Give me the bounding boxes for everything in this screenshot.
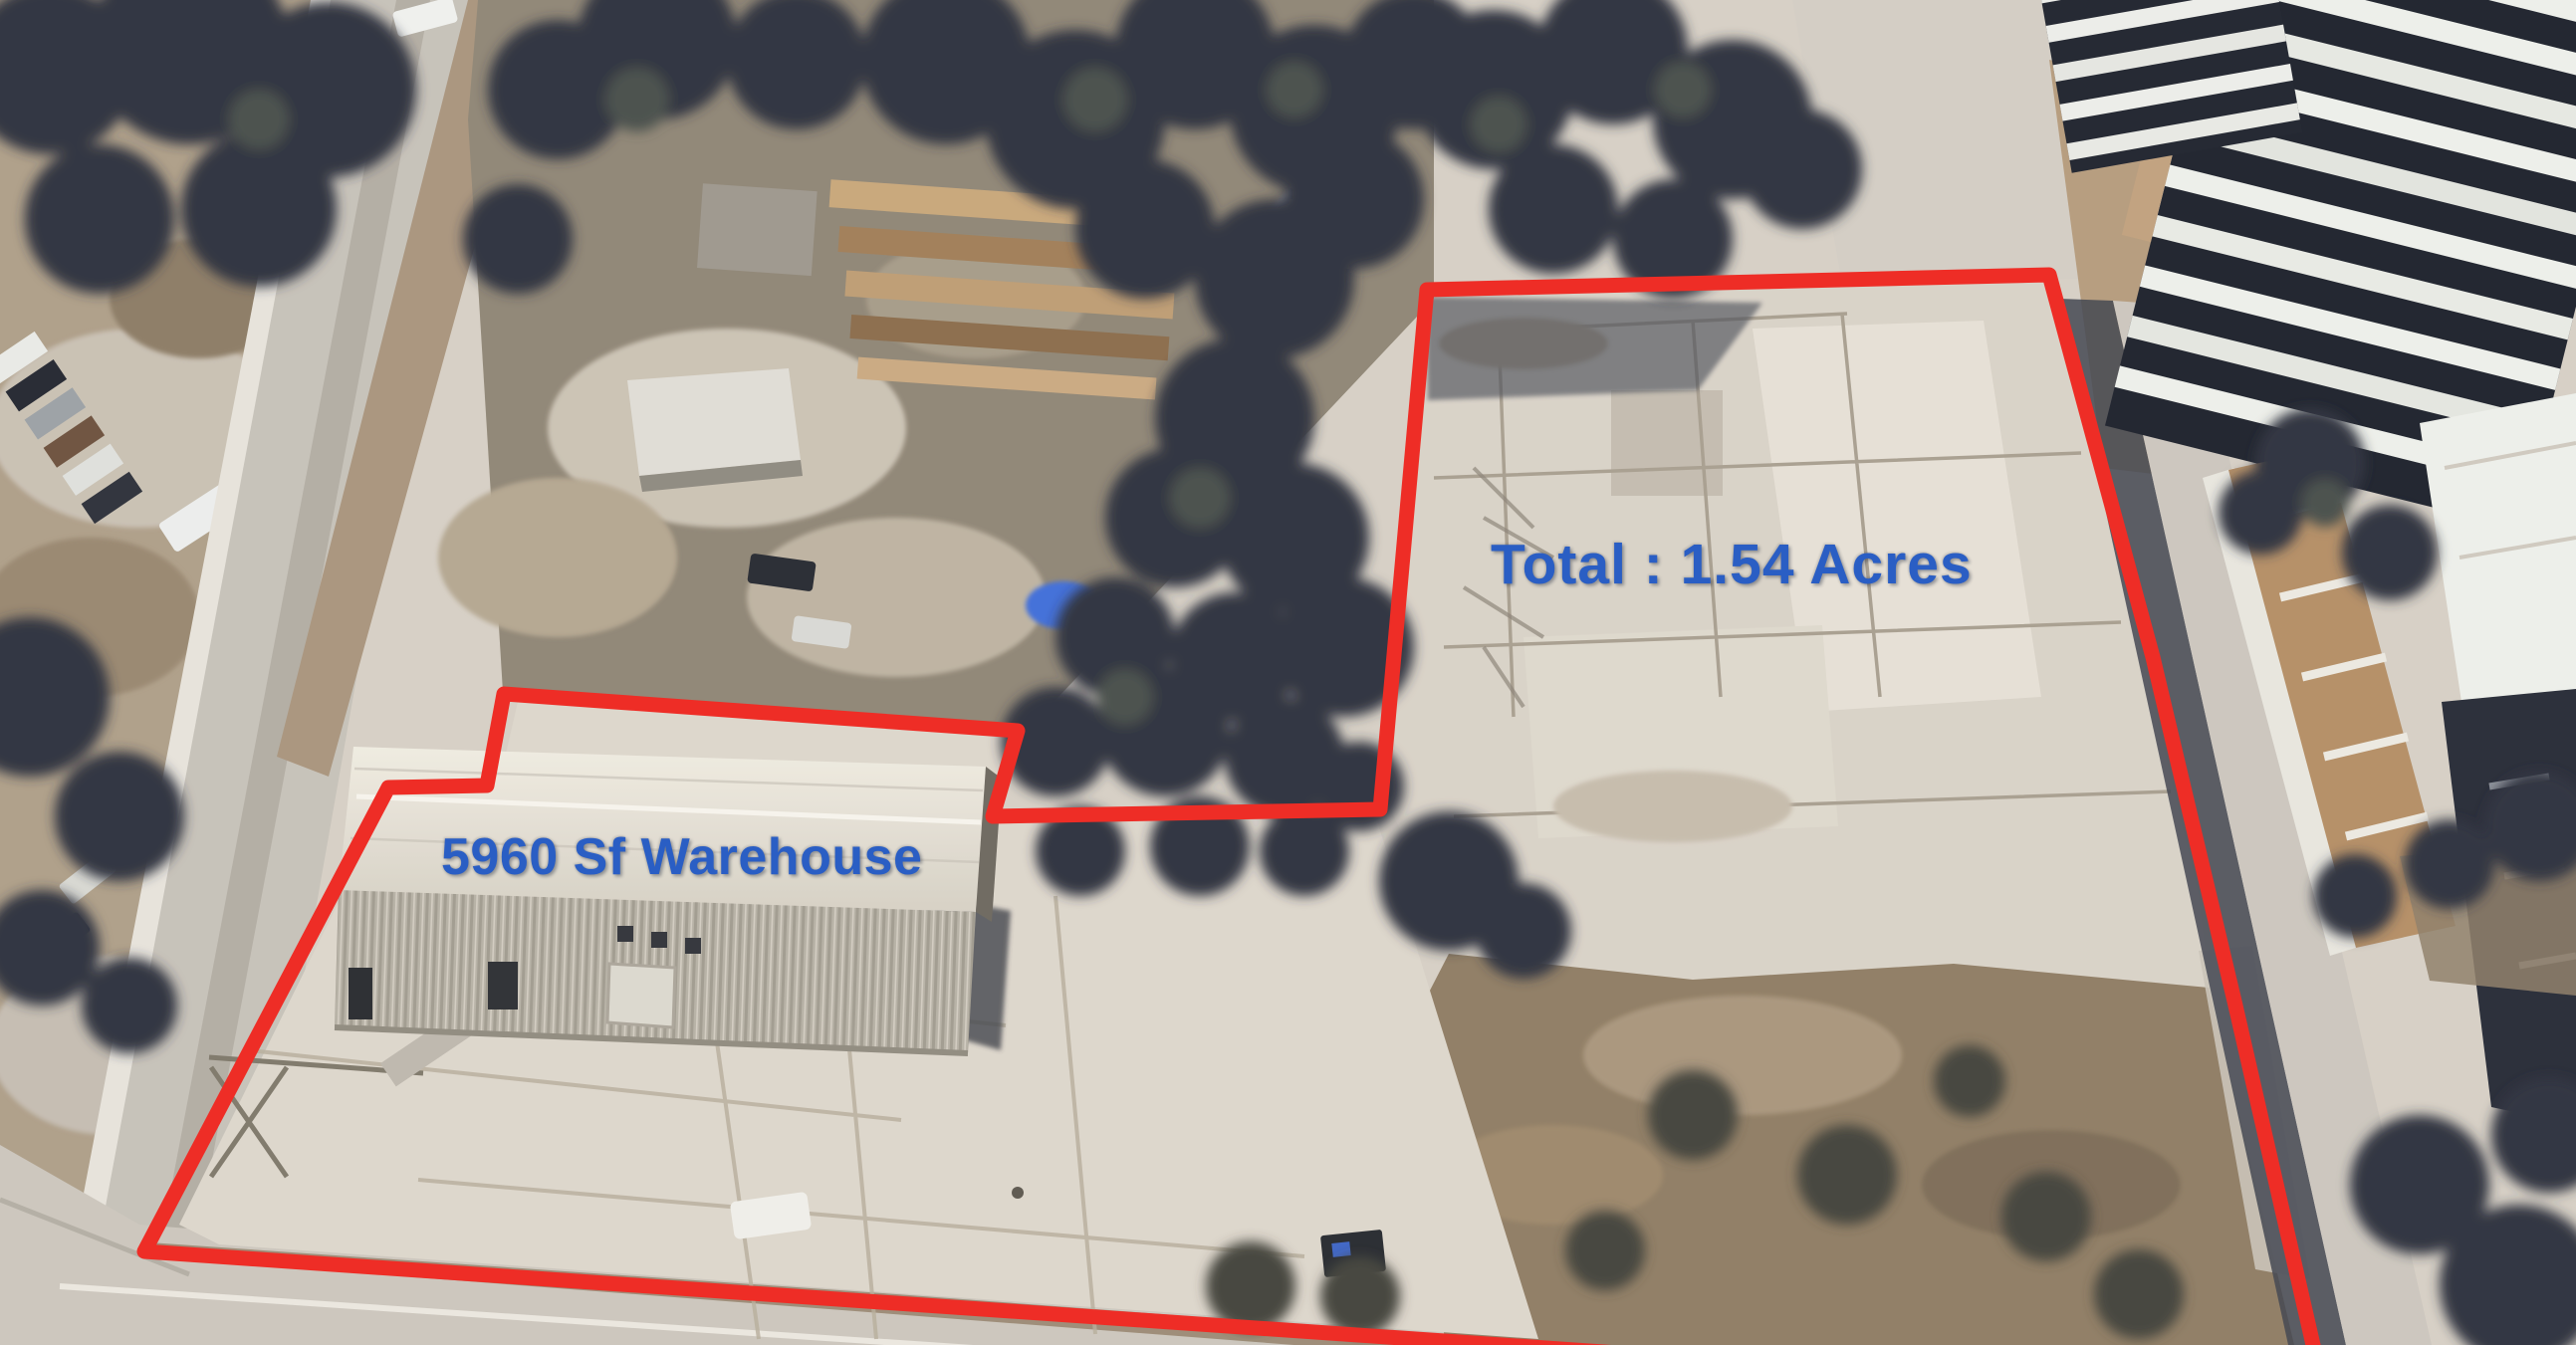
warehouse-label: 5960 Sf Warehouse bbox=[441, 827, 922, 887]
haze-overlay bbox=[0, 0, 2576, 1345]
aerial-backdrop bbox=[0, 0, 2576, 1345]
total-acres-label: Total : 1.54 Acres bbox=[1491, 532, 1973, 597]
aerial-photo: Total : 1.54 Acres 5960 Sf Warehouse bbox=[0, 0, 2576, 1345]
